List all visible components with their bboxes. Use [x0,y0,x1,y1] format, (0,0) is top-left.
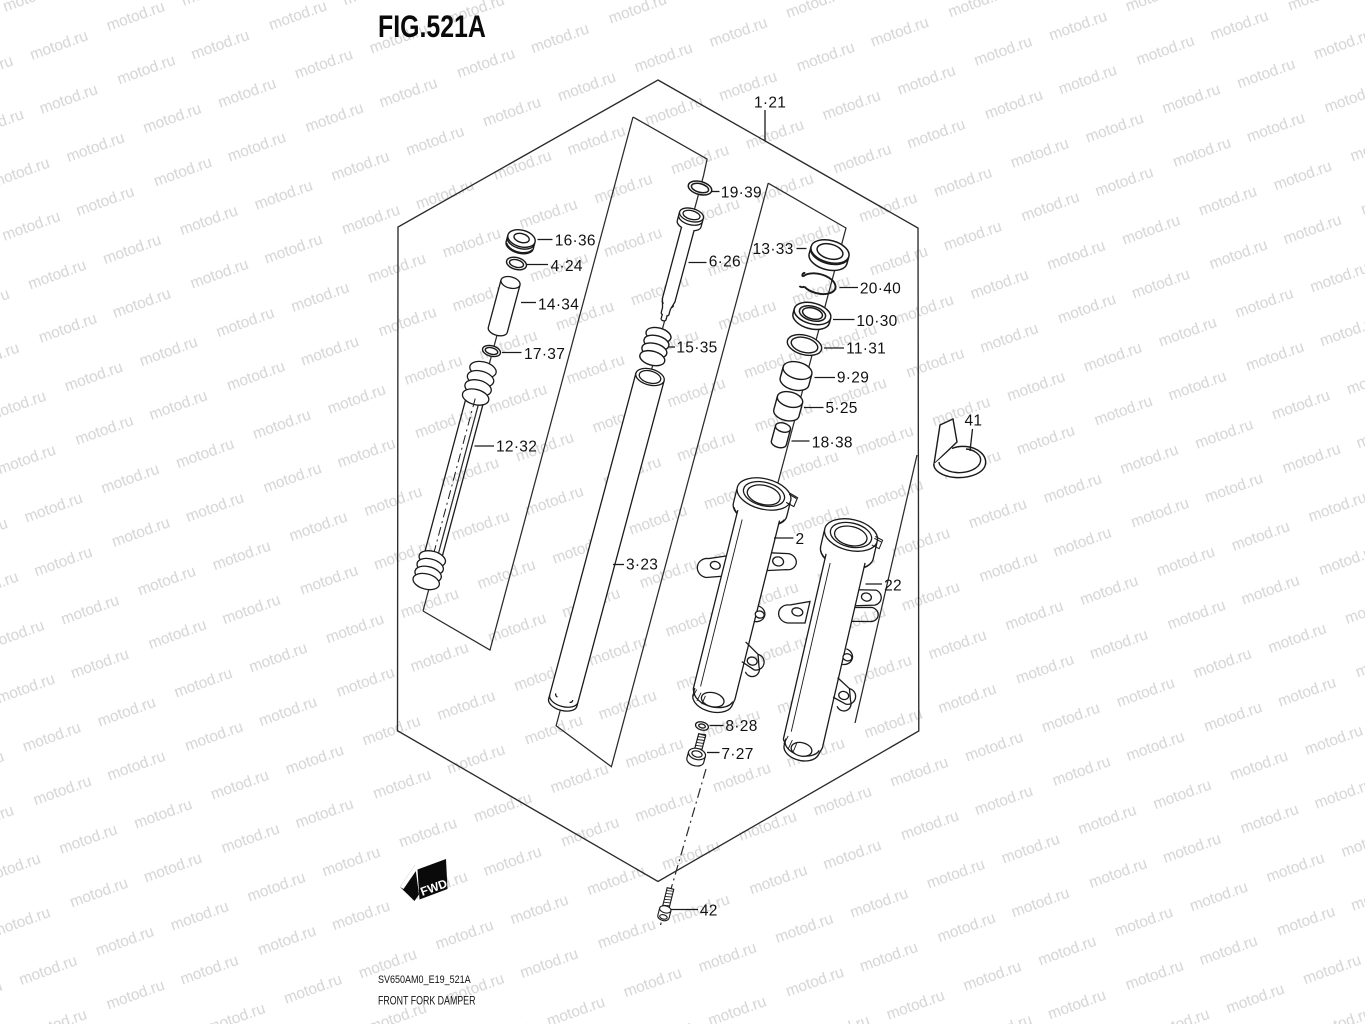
svg-text:42: 42 [700,903,718,920]
svg-text:SV650AM0_E19_521A: SV650AM0_E19_521A [378,974,471,986]
svg-text:12·32: 12·32 [496,439,537,456]
svg-text:15·35: 15·35 [676,340,717,357]
svg-text:17·37: 17·37 [524,346,565,363]
svg-text:22: 22 [884,578,902,595]
svg-text:7·27: 7·27 [721,746,753,763]
svg-text:5·25: 5·25 [826,400,858,417]
svg-text:10·30: 10·30 [856,313,897,330]
svg-text:4·24: 4·24 [551,258,583,275]
svg-text:FIG.521A: FIG.521A [378,9,486,45]
svg-text:19·39: 19·39 [721,185,762,202]
svg-text:14·34: 14·34 [538,297,579,314]
svg-text:11·31: 11·31 [846,341,886,358]
svg-text:18·38: 18·38 [812,435,853,452]
svg-text:13·33: 13·33 [753,241,794,258]
svg-text:FRONT FORK DAMPER: FRONT FORK DAMPER [378,995,476,1007]
svg-text:3·23: 3·23 [626,557,658,574]
svg-text:1·21: 1·21 [754,95,786,112]
svg-text:41: 41 [965,413,983,430]
svg-text:6·26: 6·26 [709,254,741,271]
svg-text:8·28: 8·28 [725,718,757,735]
svg-text:9·29: 9·29 [837,370,869,387]
svg-text:20·40: 20·40 [860,281,901,298]
svg-text:16·36: 16·36 [555,233,596,250]
svg-text:2: 2 [796,531,805,548]
